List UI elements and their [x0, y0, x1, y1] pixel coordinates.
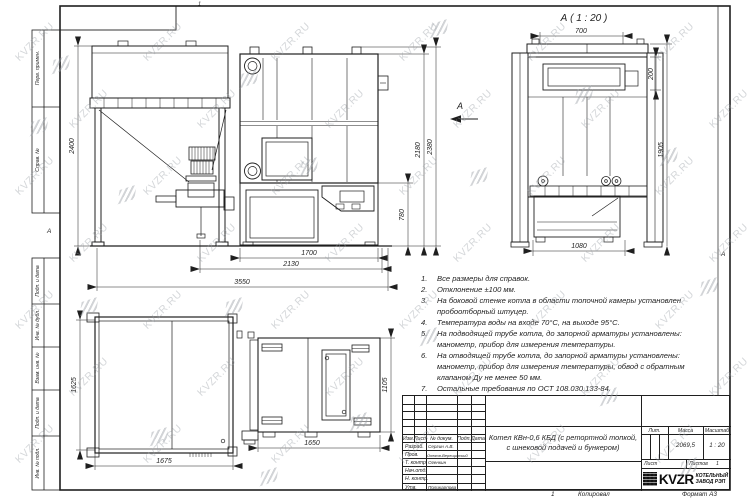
- copied-label: Копировал: [578, 491, 610, 498]
- lit-label: Лит.: [641, 428, 668, 434]
- rev-col-docnum: № докум.: [426, 436, 457, 442]
- sign-row-label: Пров.: [405, 452, 419, 458]
- title-block: Изм. Лист № докум. Подп. Дата Разраб. Се…: [402, 395, 730, 490]
- rev-col-izm: Изм.: [403, 436, 414, 442]
- note-item: 2.Отклонение ±100 мм.: [418, 284, 714, 295]
- sign-row-name: Поликарпова: [428, 485, 456, 490]
- company-name: КОТЕЛЬНЫЙ ЗАВОД РЭП: [696, 473, 729, 485]
- scale-label: Масштаб: [703, 428, 731, 434]
- scale-value: 1 : 20: [703, 442, 731, 449]
- technical-notes: 1.Все размеры для справок. 2.Отклонение …: [418, 273, 714, 394]
- sign-row-label: Н. контр.: [405, 476, 428, 482]
- note-item: 7.Остальные требования по ОСТ 108.030.13…: [418, 383, 714, 394]
- sheets-value: 1: [716, 461, 719, 467]
- sign-row-name: Огенкин: [428, 460, 446, 465]
- rev-col-data: Дата: [471, 436, 485, 442]
- mass-value: 2069,5: [668, 442, 703, 449]
- sign-row-label: Нач.отд.: [405, 468, 427, 474]
- note-item: 4.Температура воды на входе 70°С, на вых…: [418, 317, 714, 328]
- format-label: Формат А3: [682, 491, 717, 498]
- sign-row-label: Т. контр.: [405, 460, 427, 466]
- titleblock-doc-title: Котел КВн-0,6 КБД (с ретортной топкой, с…: [487, 427, 639, 459]
- kvzr-logo-icon: [643, 472, 657, 486]
- rev-col-podp: Подп.: [457, 436, 471, 442]
- sign-row-label: Разраб.: [405, 444, 424, 450]
- sheets-label: Листов: [689, 461, 708, 467]
- note-item: 6.На отводящей трубе котла, до запорной …: [418, 350, 714, 383]
- note-item: 3.На боковой стенке котла в области топо…: [418, 295, 714, 317]
- drawing-sheet: А А 1 Перв. примен. Справ. № Подп. и дат…: [0, 0, 750, 500]
- mass-label: Масса: [668, 428, 703, 434]
- rev-col-list: Лист: [414, 436, 426, 442]
- company-logo: KVZR КОТЕЛЬНЫЙ ЗАВОД РЭП: [642, 469, 729, 489]
- sign-row-label: Утв.: [405, 485, 417, 491]
- copy-number: 1: [551, 491, 555, 498]
- kvzr-logo-text: KVZR: [659, 472, 694, 487]
- sign-row-name: Онегов-Верещинский: [427, 453, 468, 458]
- note-item: 5.На подводящей трубе котла, до запорной…: [418, 328, 714, 350]
- sheet-label: Лист: [644, 461, 657, 467]
- annotation-layer: 1.Все размеры для справок. 2.Отклонение …: [0, 0, 750, 500]
- note-item: 1.Все размеры для справок.: [418, 273, 714, 284]
- sign-row-name: Сергин А.В.: [428, 444, 454, 449]
